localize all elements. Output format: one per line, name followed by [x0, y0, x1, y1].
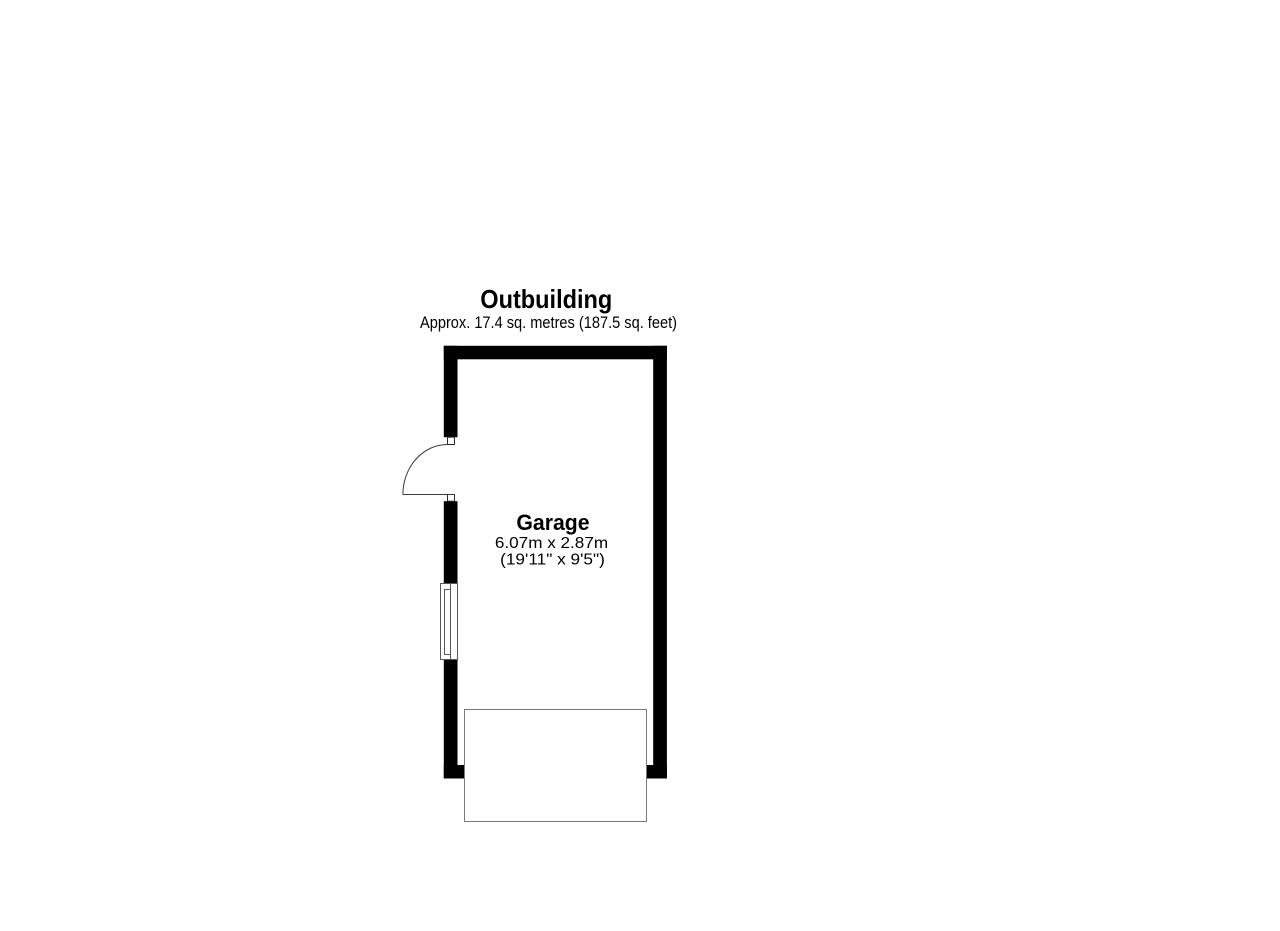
- svg-text:(19'11" x 9'5"): (19'11" x 9'5"): [500, 552, 605, 569]
- svg-text:Garage: Garage: [516, 510, 589, 535]
- svg-text:Approx. 17.4 sq. metres (187.5: Approx. 17.4 sq. metres (187.5 sq. feet): [420, 314, 677, 332]
- svg-text:6.07m x 2.87m: 6.07m x 2.87m: [495, 535, 608, 552]
- svg-text:Outbuilding: Outbuilding: [480, 284, 612, 314]
